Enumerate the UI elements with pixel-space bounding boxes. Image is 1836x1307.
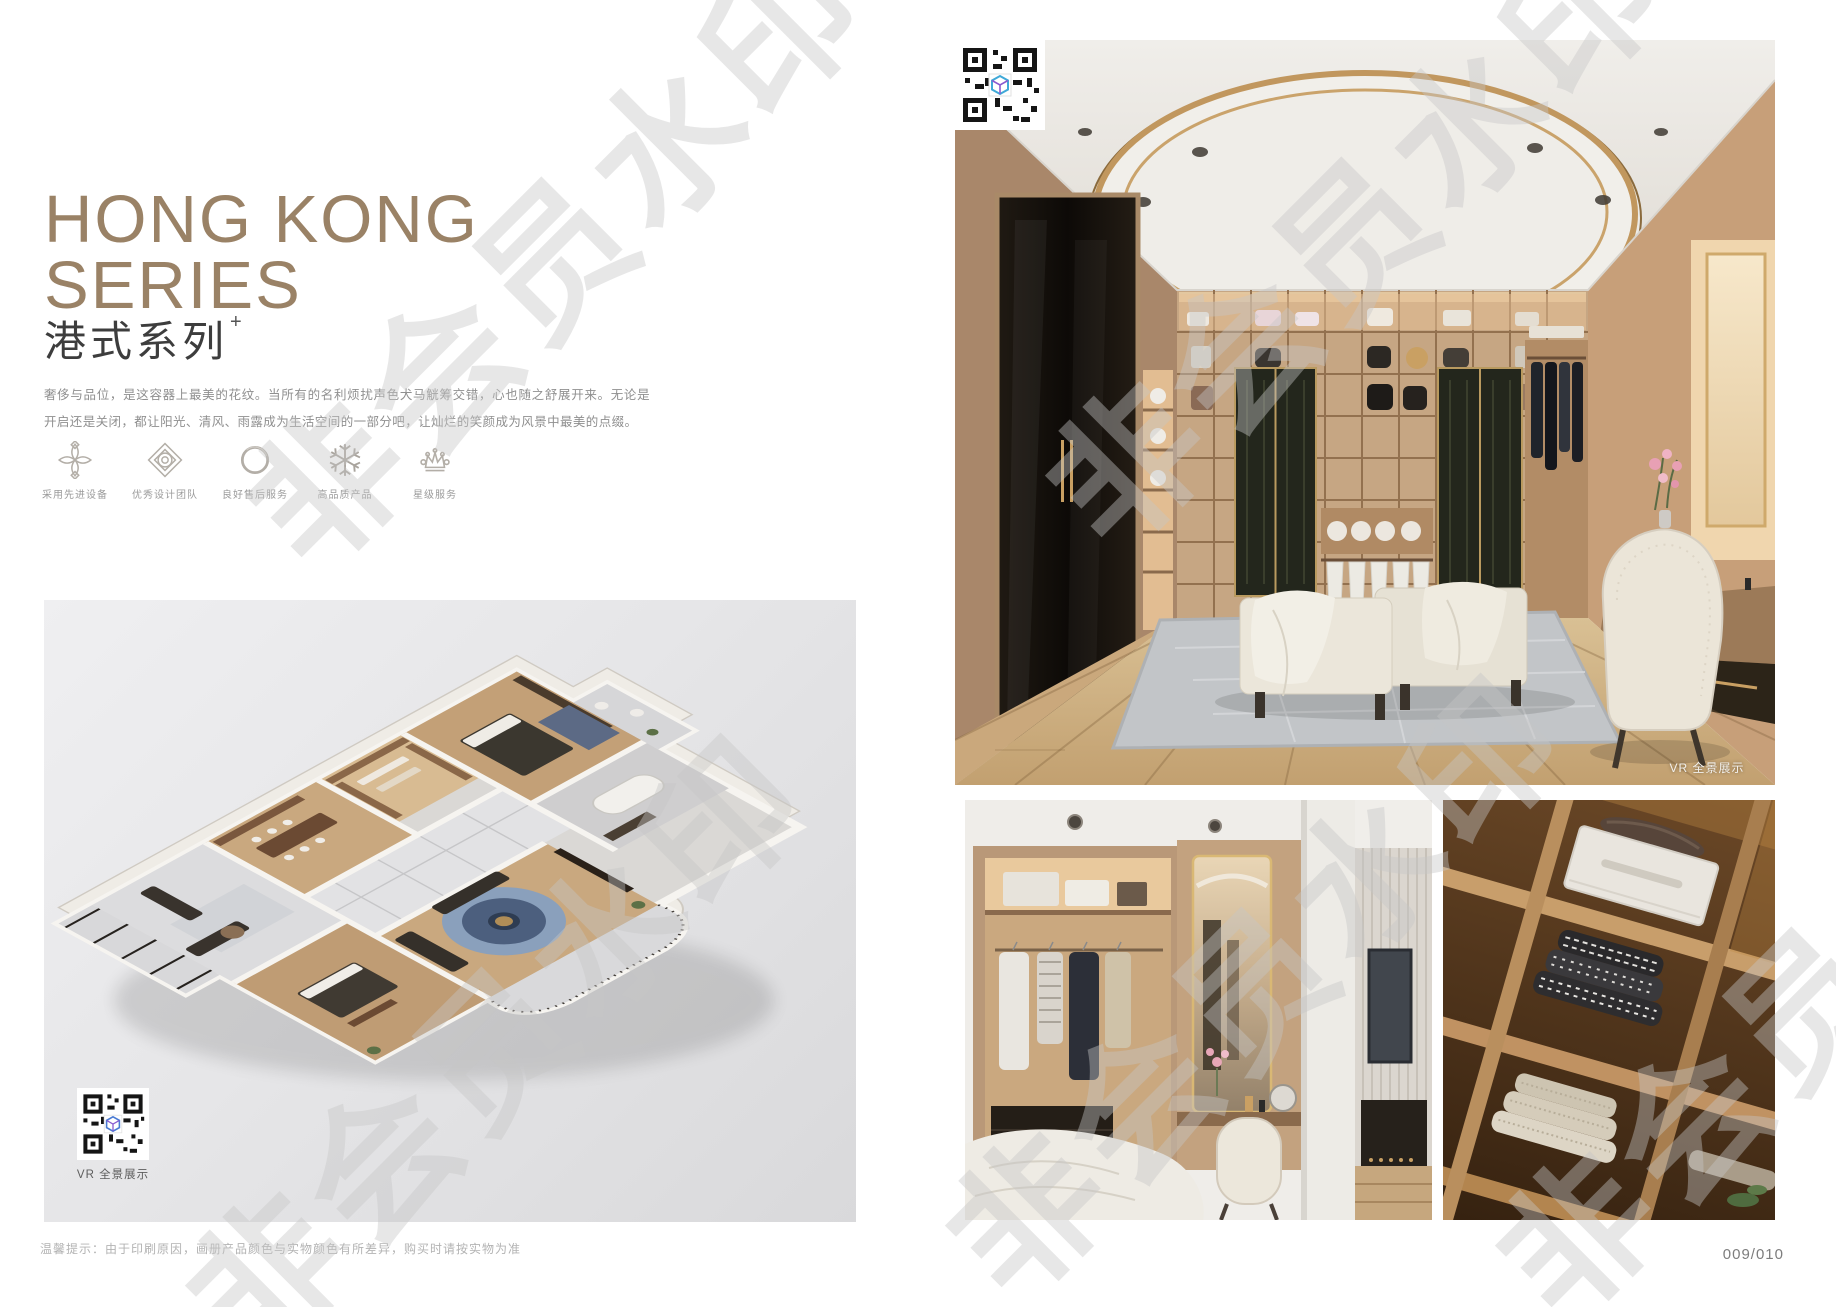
vr-panorama-label-left: VR 全景展示 xyxy=(52,1166,174,1182)
pinwheel-icon xyxy=(56,441,94,479)
series-subtitle-text: 港式系列 xyxy=(44,318,228,365)
plant-sprig xyxy=(1727,1193,1759,1207)
feature-label: 高品质产品 xyxy=(318,486,373,501)
subtitle-plus-mark: + xyxy=(230,311,246,333)
series-description: 奢侈与品位，是这容器上最美的花纹。当所有的名利烦扰声色犬马觥筹交错，心也随之舒展… xyxy=(44,382,650,436)
feature-label: 采用先进设备 xyxy=(42,486,108,501)
feature-advanced-equipment: 采用先进设备 xyxy=(44,441,106,501)
snowflake-icon xyxy=(326,441,364,479)
dressing-area-scene xyxy=(965,800,1432,1220)
vr-panorama-label-right: VR 全景展示 xyxy=(1647,759,1767,776)
feature-icon-row: 采用先进设备 优秀设计团队 良好售后服务 xyxy=(44,441,466,501)
shelf-closeup-scene xyxy=(1443,800,1775,1220)
series-title: HONG KONG SERIES xyxy=(44,187,479,318)
feature-label: 优秀设计团队 xyxy=(132,486,198,501)
feature-label: 良好售后服务 xyxy=(222,486,288,501)
hanging-garments xyxy=(1531,362,1583,470)
crown-icon xyxy=(416,441,454,479)
page-number: 009/010 xyxy=(1694,1246,1784,1263)
dressing-chair xyxy=(1217,1118,1281,1220)
feature-quality: 高品质产品 xyxy=(314,441,376,501)
photo-walkin-closet: VR 全景展示 xyxy=(955,40,1775,785)
feature-design-team: 优秀设计团队 xyxy=(134,441,196,501)
feature-star-service: 星级服务 xyxy=(404,441,466,501)
diagonal-shelf xyxy=(1443,800,1775,1220)
ring-icon xyxy=(236,441,274,479)
vr-qr-code-right xyxy=(955,40,1045,130)
vr-qr-code-left xyxy=(77,1088,149,1160)
walkin-closet-scene xyxy=(955,40,1775,785)
white-pillar xyxy=(1301,800,1355,1220)
series-subtitle: 港式系列+ xyxy=(44,308,246,369)
catalog-spread: HONG KONG SERIES 港式系列+ 奢侈与品位，是这容器上最美的花纹。… xyxy=(0,0,1836,1307)
bench-beds xyxy=(1215,582,1575,720)
isometric-floorplan xyxy=(44,600,856,1222)
feature-label: 星级服务 xyxy=(413,486,457,501)
floorplan-panel: VR 全景展示 xyxy=(44,600,856,1222)
adjacent-room xyxy=(1355,800,1432,1220)
series-title-line1: HONG KONG xyxy=(44,187,479,253)
photo-shelf-closeup xyxy=(1443,800,1775,1220)
feature-after-sales: 良好售后服务 xyxy=(224,441,286,501)
photo-dressing-area xyxy=(965,800,1432,1220)
rosette-icon xyxy=(146,441,184,479)
print-disclaimer-note: 温馨提示：由于印刷原因，画册产品颜色与实物颜色有所差异，购买时请按实物为准 xyxy=(40,1240,521,1257)
